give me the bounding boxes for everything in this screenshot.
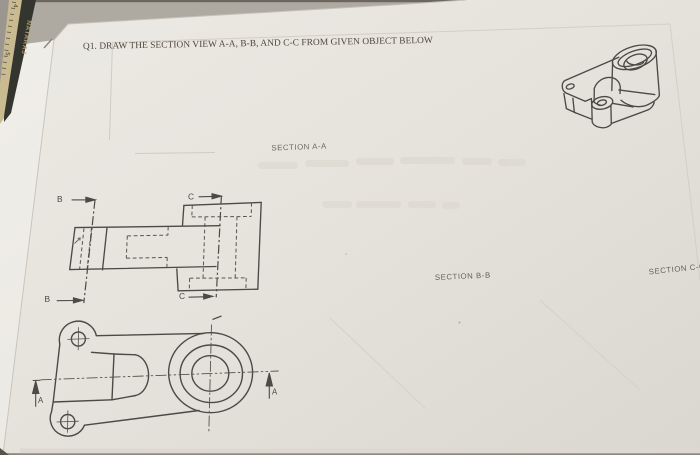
svg-text:B: B xyxy=(57,194,63,204)
svg-text:A: A xyxy=(272,388,278,397)
svg-text:B: B xyxy=(45,294,51,304)
svg-text:C: C xyxy=(179,291,185,301)
svg-text:C: C xyxy=(188,192,194,202)
svg-text:A: A xyxy=(38,396,44,405)
